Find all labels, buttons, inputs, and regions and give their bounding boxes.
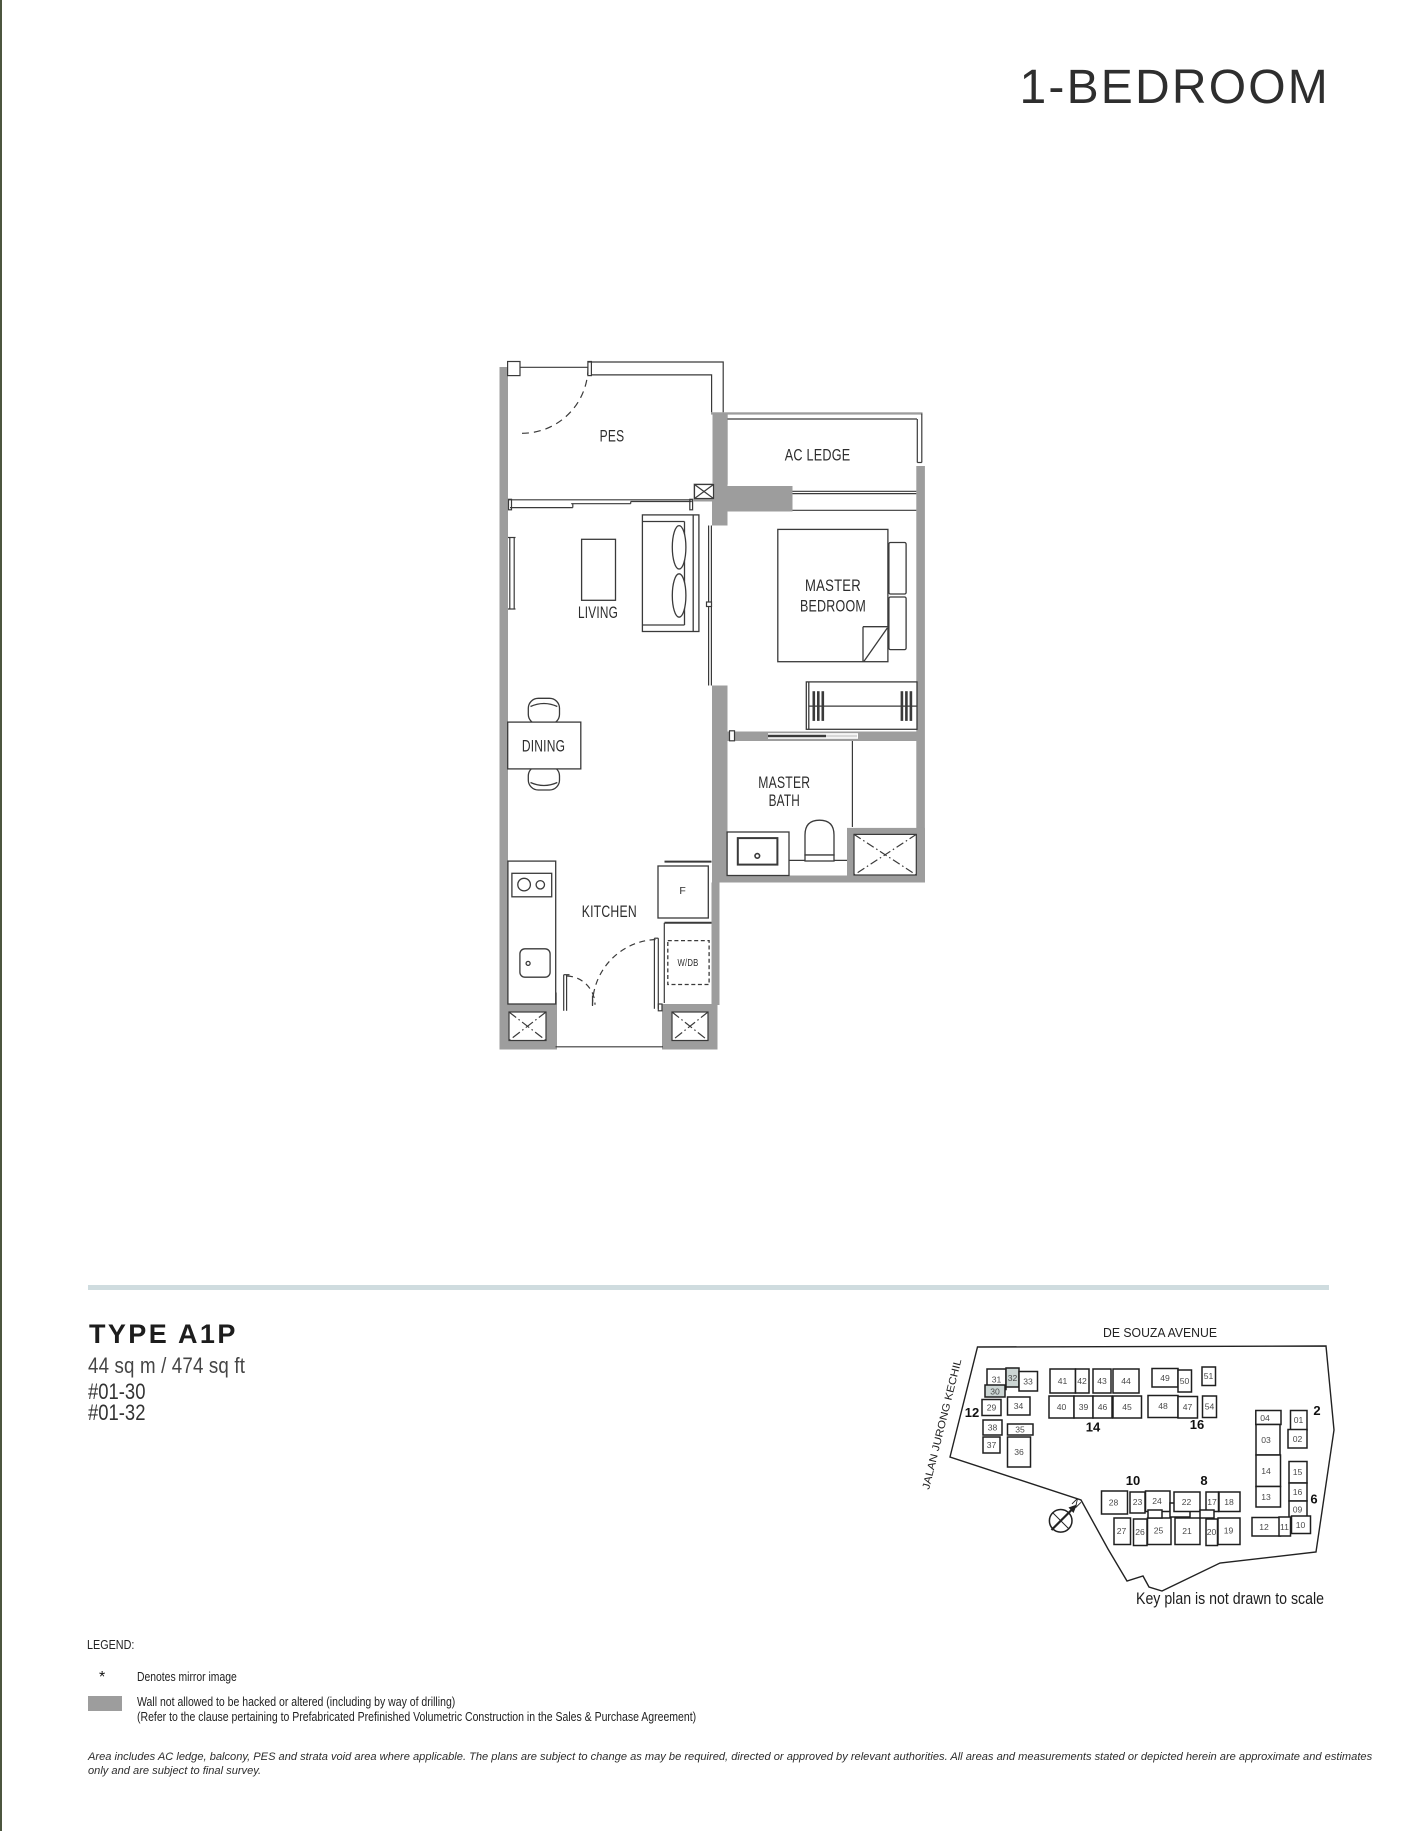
svg-text:35: 35	[1015, 1425, 1025, 1435]
svg-text:03: 03	[1261, 1435, 1271, 1445]
svg-text:39: 39	[1079, 1402, 1089, 1412]
svg-text:2: 2	[1313, 1403, 1320, 1418]
svg-text:19: 19	[1224, 1526, 1234, 1536]
svg-text:BATH: BATH	[769, 792, 800, 810]
svg-text:38: 38	[988, 1423, 998, 1433]
svg-text:51: 51	[1204, 1371, 1214, 1381]
svg-text:31: 31	[992, 1374, 1002, 1384]
svg-text:25: 25	[1154, 1526, 1164, 1536]
svg-text:F: F	[679, 885, 686, 897]
svg-text:44: 44	[1121, 1376, 1131, 1386]
svg-text:28: 28	[1109, 1498, 1119, 1508]
svg-text:09: 09	[1293, 1505, 1303, 1515]
svg-text:22: 22	[1182, 1497, 1192, 1507]
svg-text:21: 21	[1182, 1526, 1192, 1536]
svg-text:40: 40	[1057, 1402, 1067, 1412]
svg-text:18: 18	[1224, 1497, 1234, 1507]
svg-text:BEDROOM: BEDROOM	[800, 597, 866, 615]
svg-text:43: 43	[1097, 1376, 1107, 1386]
svg-text:46: 46	[1098, 1402, 1108, 1412]
svg-text:42: 42	[1077, 1376, 1087, 1386]
svg-text:36: 36	[1014, 1447, 1024, 1457]
svg-text:DE SOUZA AVENUE: DE SOUZA AVENUE	[1103, 1326, 1217, 1340]
svg-text:KITCHEN: KITCHEN	[582, 903, 637, 921]
svg-text:20: 20	[1207, 1527, 1217, 1537]
svg-text:54: 54	[1205, 1402, 1215, 1412]
svg-text:10: 10	[1126, 1473, 1140, 1488]
svg-text:24: 24	[1152, 1496, 1162, 1506]
svg-text:37: 37	[987, 1440, 997, 1450]
svg-text:AC LEDGE: AC LEDGE	[785, 447, 851, 465]
svg-text:34: 34	[1014, 1401, 1024, 1411]
svg-text:13: 13	[1261, 1492, 1271, 1502]
svg-text:PES: PES	[600, 428, 625, 446]
svg-text:29: 29	[987, 1403, 997, 1413]
svg-text:16: 16	[1293, 1487, 1303, 1497]
svg-text:MASTER: MASTER	[805, 577, 861, 595]
svg-text:8: 8	[1200, 1473, 1207, 1488]
svg-text:50: 50	[1180, 1376, 1190, 1386]
svg-text:45: 45	[1122, 1402, 1132, 1412]
svg-text:41: 41	[1058, 1376, 1068, 1386]
svg-text:MASTER: MASTER	[758, 774, 810, 792]
svg-text:04: 04	[1260, 1413, 1270, 1423]
svg-text:49: 49	[1160, 1373, 1170, 1383]
svg-text:17: 17	[1207, 1497, 1217, 1507]
svg-text:33: 33	[1023, 1377, 1033, 1387]
svg-text:12: 12	[1259, 1522, 1269, 1532]
svg-text:11: 11	[1280, 1522, 1289, 1532]
svg-text:02: 02	[1293, 1434, 1303, 1444]
svg-text:48: 48	[1158, 1401, 1168, 1411]
svg-text:14: 14	[1261, 1466, 1271, 1476]
svg-text:12: 12	[965, 1405, 979, 1420]
svg-text:47: 47	[1183, 1402, 1193, 1412]
svg-text:23: 23	[1133, 1497, 1143, 1507]
svg-text:27: 27	[1117, 1526, 1127, 1536]
svg-text:W/DB: W/DB	[677, 957, 698, 969]
svg-text:32: 32	[1008, 1373, 1018, 1383]
svg-text:16: 16	[1190, 1417, 1204, 1432]
svg-text:01: 01	[1294, 1415, 1304, 1425]
svg-text:30: 30	[990, 1387, 1000, 1397]
svg-text:LIVING: LIVING	[578, 604, 618, 622]
svg-text:26: 26	[1135, 1527, 1145, 1537]
svg-text:DINING: DINING	[522, 737, 565, 755]
svg-text:14: 14	[1086, 1420, 1101, 1435]
svg-text:10: 10	[1296, 1520, 1306, 1530]
svg-text:Key plan is not drawn to scale: Key plan is not drawn to scale	[1136, 1590, 1324, 1608]
svg-text:6: 6	[1310, 1492, 1317, 1507]
svg-text:15: 15	[1293, 1467, 1303, 1477]
